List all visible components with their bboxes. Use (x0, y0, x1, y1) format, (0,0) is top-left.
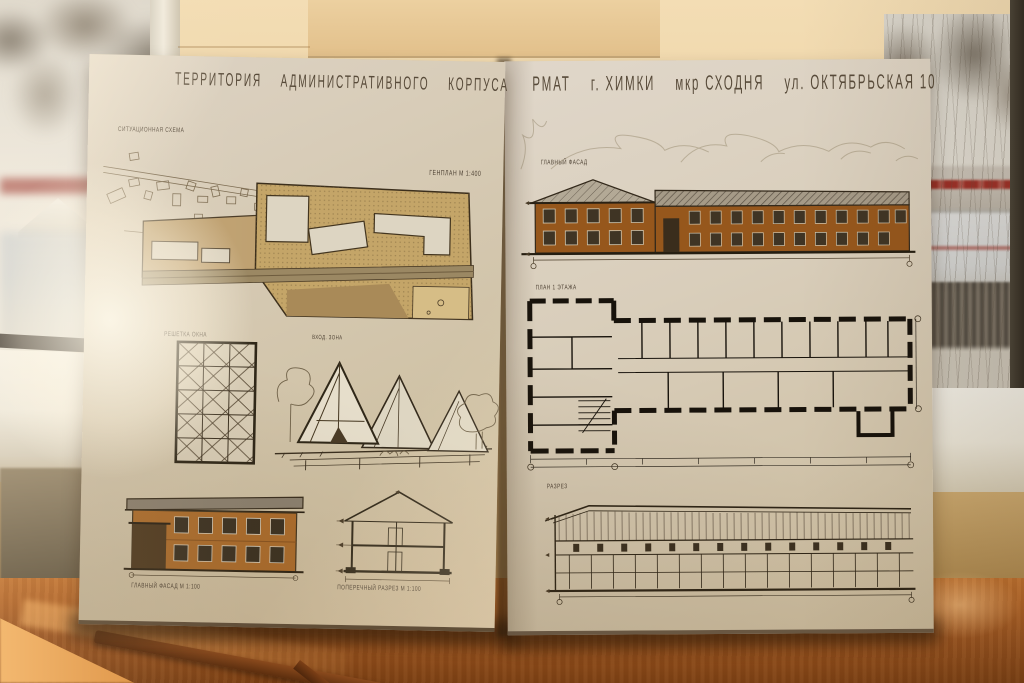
cross-section-label-text: ПОПЕРЕЧНЫЙ РАЗРЕЗ М 1:100 (337, 584, 421, 594)
main-facade-label-text: ГЛАВНЫЙ ФАСАД М 1:100 (131, 582, 200, 591)
left-poster-title-text: ТЕРРИТОРИЯ АДМИНИСТРАТИВНОГО КОРПУСА (175, 70, 509, 96)
backing-board (308, 0, 660, 58)
gazebo-perspective-drawing (269, 342, 500, 488)
building-elevation-drawing (517, 165, 920, 269)
floor-plan-label-text: ПЛАН 1 ЭТАЖА (536, 284, 577, 292)
photo-of-architectural-boards: РМАТ г. ХИМКИ мкр СХОДНЯ ул. ОКТЯБРЬСКАЯ… (0, 0, 1024, 683)
section-label-text: РАЗРЕЗ (547, 483, 568, 491)
house-section-drawing (335, 483, 461, 585)
lattice-label-text: РЕШЕТКА ОКНА (164, 330, 207, 339)
floor-plan-drawing (518, 291, 923, 471)
left-poster: ТЕРРИТОРИЯ АДМИНИСТРАТИВНОГО КОРПУСА СИТ… (79, 54, 506, 632)
wall-seam (178, 46, 310, 48)
house-elevation-drawing (123, 483, 305, 583)
right-poster-title-text: РМАТ г. ХИМКИ мкр СХОДНЯ ул. ОКТЯБРЬСКАЯ… (532, 70, 936, 96)
genplan-drawing (136, 173, 479, 331)
right-poster: РМАТ г. ХИМКИ мкр СХОДНЯ ул. ОКТЯБРЬСКАЯ… (504, 59, 933, 636)
lattice-drawing (174, 340, 258, 466)
building-section-drawing (525, 491, 918, 605)
entry-zone-label-text: ВХОД. ЗОНА (312, 334, 343, 341)
situation-scheme-label-text: СИТУАЦИОННАЯ СХЕМА (118, 126, 184, 135)
right-window-frame (1010, 0, 1024, 408)
genplan-label-text: ГЕНПЛАН М 1:400 (429, 170, 481, 179)
